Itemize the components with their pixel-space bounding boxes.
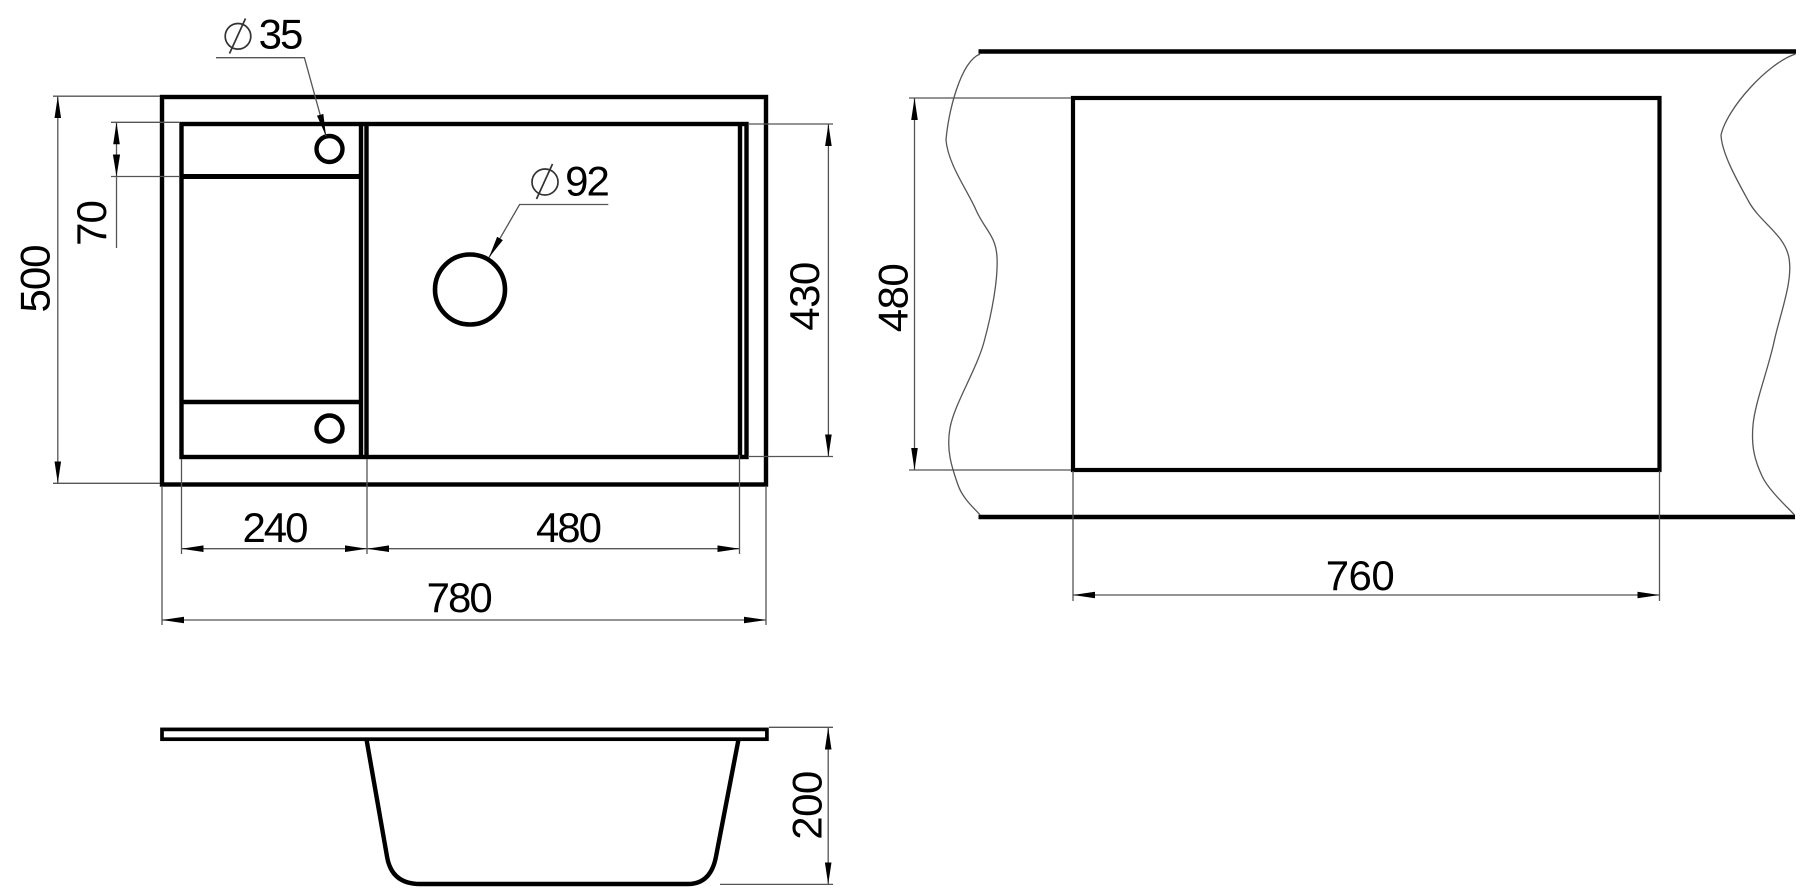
svg-text:480: 480 bbox=[536, 504, 601, 551]
svg-text:430: 430 bbox=[781, 262, 828, 331]
svg-text:240: 240 bbox=[242, 504, 307, 551]
svg-text:780: 780 bbox=[427, 574, 492, 621]
svg-text:500: 500 bbox=[12, 245, 59, 312]
svg-text:760: 760 bbox=[1326, 552, 1395, 599]
svg-text:200: 200 bbox=[784, 771, 831, 840]
svg-text:92: 92 bbox=[565, 158, 608, 205]
svg-text:35: 35 bbox=[259, 11, 302, 58]
svg-text:480: 480 bbox=[870, 264, 917, 333]
svg-text:70: 70 bbox=[68, 201, 115, 246]
